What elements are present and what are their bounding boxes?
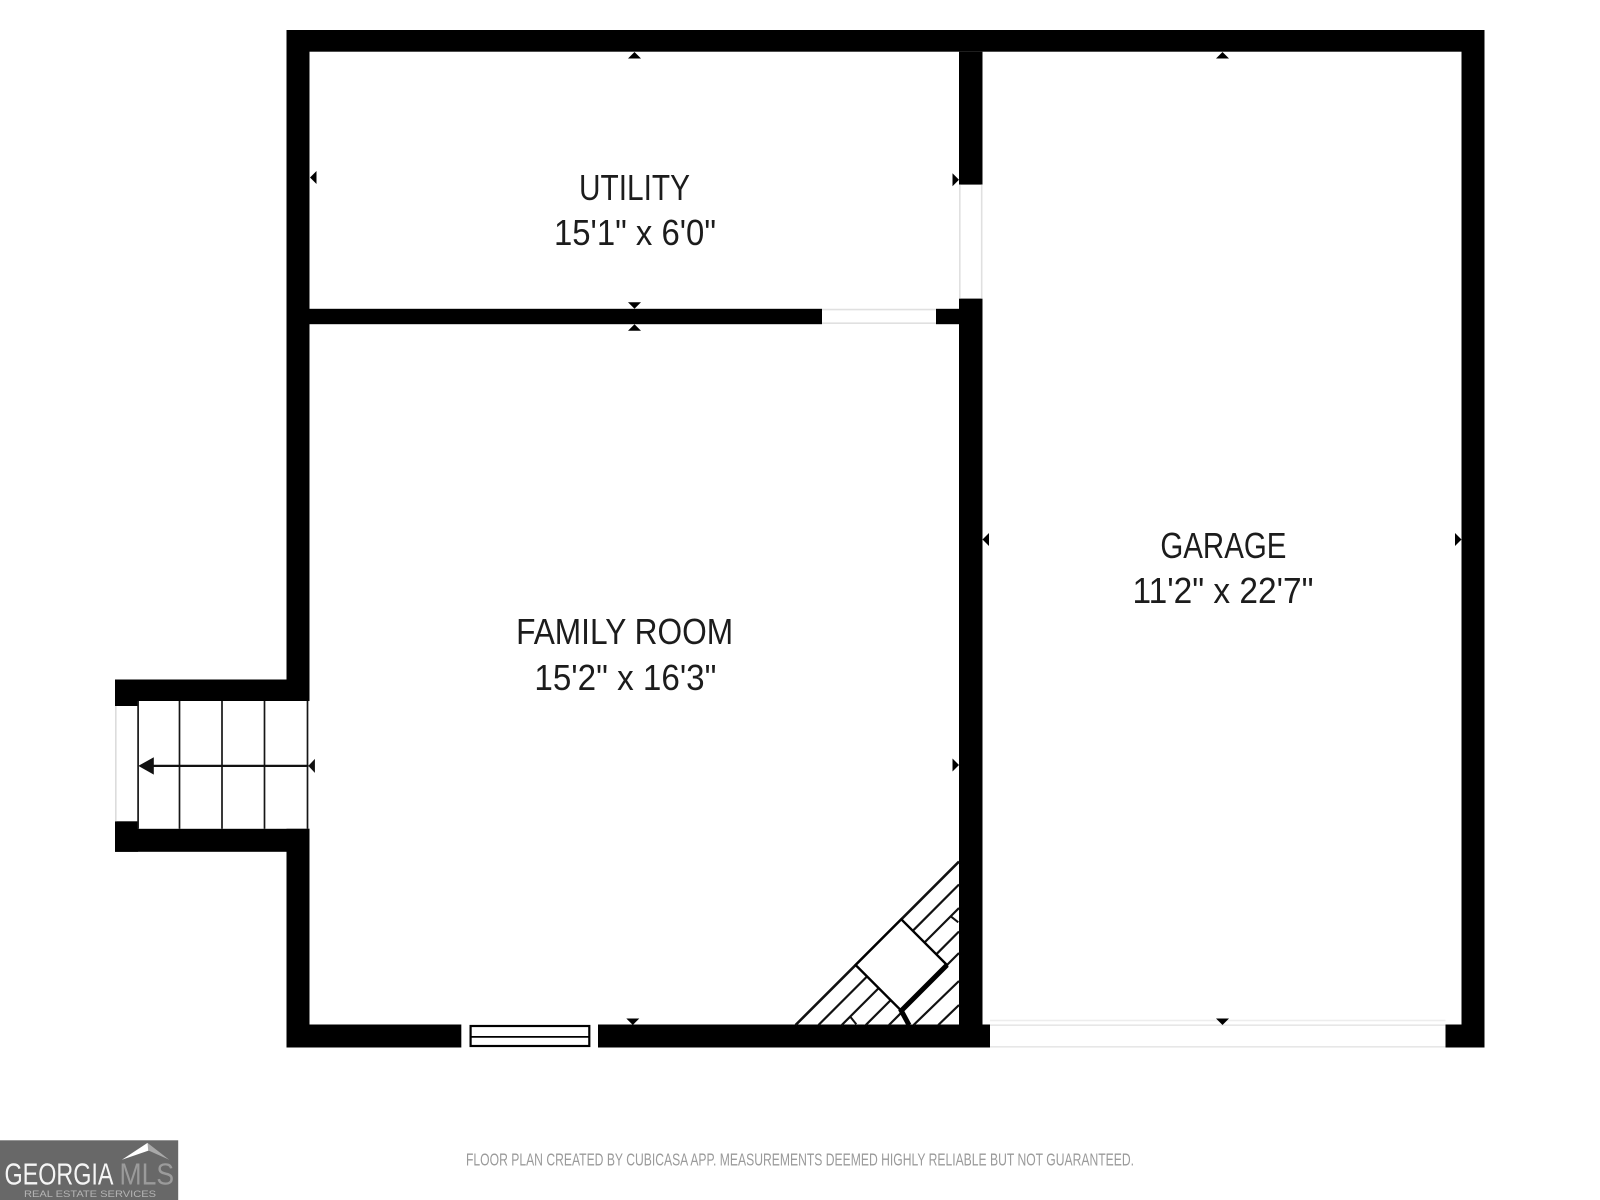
svg-text:11'2" x 22'7": 11'2" x 22'7" [1133, 570, 1314, 611]
svg-text:FLOOR PLAN CREATED BY CUBICASA: FLOOR PLAN CREATED BY CUBICASA APP. MEAS… [466, 1150, 1134, 1170]
svg-text:15'1" x 6'0": 15'1" x 6'0" [554, 212, 716, 253]
svg-text:MLS: MLS [120, 1157, 175, 1192]
svg-text:15'2" x 16'3": 15'2" x 16'3" [534, 657, 716, 698]
svg-text:UTILITY: UTILITY [579, 167, 690, 208]
svg-text:REAL ESTATE SERVICES: REAL ESTATE SERVICES [24, 1189, 156, 1200]
svg-text:GARAGE: GARAGE [1160, 525, 1286, 566]
svg-text:GEORGIA: GEORGIA [5, 1157, 114, 1192]
svg-text:FAMILY ROOM: FAMILY ROOM [516, 611, 733, 652]
